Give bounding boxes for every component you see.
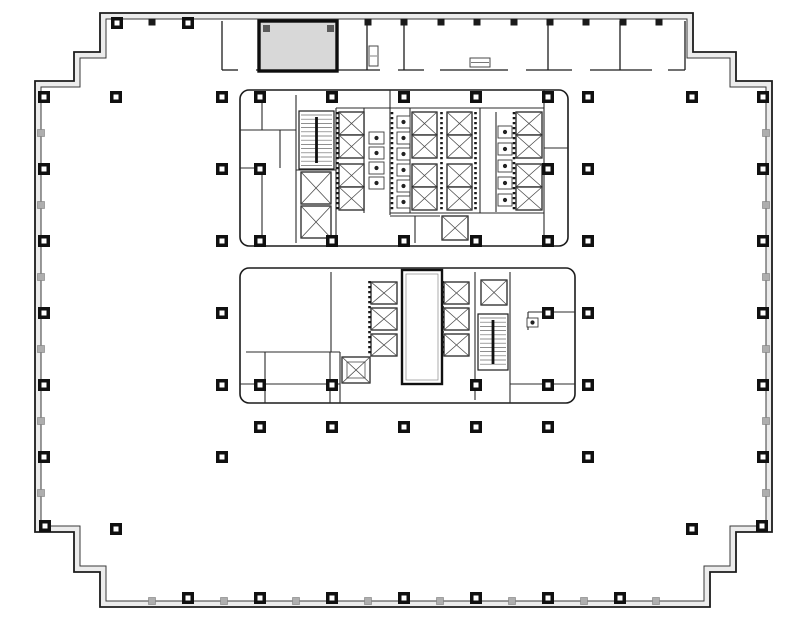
structural-column-core xyxy=(618,596,623,601)
toilet-fixture-bowl xyxy=(401,200,405,204)
structural-column-core xyxy=(186,596,191,601)
structural-column-core xyxy=(42,311,47,316)
mullion-tick xyxy=(38,202,45,209)
shaded-room-outline xyxy=(259,21,337,71)
mullion-tick xyxy=(511,19,518,26)
mullion-tick xyxy=(583,19,590,26)
structural-column-core xyxy=(586,239,591,244)
structural-column-core xyxy=(258,596,263,601)
mullion-tick xyxy=(763,130,770,137)
structural-column-core xyxy=(258,425,263,430)
structural-column-core xyxy=(258,167,263,172)
mullion-tick xyxy=(221,598,228,605)
stair-rail xyxy=(492,320,495,364)
structural-column-core xyxy=(546,95,551,100)
mullion-tick xyxy=(474,19,481,26)
structural-column-core xyxy=(330,596,335,601)
toilet-fixture-bowl xyxy=(401,136,405,140)
mullion-tick xyxy=(149,19,156,26)
mullion-tick xyxy=(437,598,444,605)
toilet-fixture-bowl xyxy=(503,198,507,202)
toilet-fixture-bowl xyxy=(503,164,507,168)
mullion-tick xyxy=(438,19,445,26)
structural-column-core xyxy=(330,95,335,100)
structural-column-core xyxy=(114,527,119,532)
toilet-fixture-bowl xyxy=(401,152,405,156)
structural-column-core xyxy=(586,311,591,316)
mullion-tick xyxy=(149,598,156,605)
structural-column-core xyxy=(546,311,551,316)
floor-plan-drawing xyxy=(0,0,787,627)
structural-column-core xyxy=(42,167,47,172)
mullion-tick xyxy=(763,346,770,353)
toilet-fixture-bowl xyxy=(401,168,405,172)
mullion-tick xyxy=(763,418,770,425)
structural-column-core xyxy=(474,239,479,244)
structural-column-core xyxy=(761,455,766,460)
structural-column-core xyxy=(42,455,47,460)
toilet-fixture-bowl xyxy=(374,136,378,140)
mullion-tick xyxy=(38,418,45,425)
structural-column-core xyxy=(761,383,766,388)
mullion-tick xyxy=(38,346,45,353)
structural-column-core xyxy=(586,95,591,100)
toilet-fixture-bowl xyxy=(503,147,507,151)
structural-column-core xyxy=(402,596,407,601)
toilet-fixture-bowl xyxy=(374,181,378,185)
mullion-tick xyxy=(365,19,372,26)
structural-column-core xyxy=(546,596,551,601)
mullion-tick xyxy=(401,19,408,26)
mullion-tick xyxy=(38,130,45,137)
structural-column-core xyxy=(474,596,479,601)
structural-column-core xyxy=(546,383,551,388)
structural-column-core xyxy=(115,21,120,26)
structural-column-core xyxy=(42,383,47,388)
mullion-tick xyxy=(509,598,516,605)
structural-column-core xyxy=(761,167,766,172)
toilet-fixture-bowl xyxy=(401,184,405,188)
mullion-tick xyxy=(763,202,770,209)
structural-column-core xyxy=(402,425,407,430)
mullion-tick xyxy=(620,19,627,26)
structural-column-core xyxy=(220,311,225,316)
lower-service-core xyxy=(240,268,575,403)
structural-column-core xyxy=(43,524,48,529)
mullion-tick xyxy=(763,490,770,497)
toilet-fixture-bowl xyxy=(530,320,534,324)
structural-column-core xyxy=(42,239,47,244)
structural-column-core xyxy=(220,383,225,388)
mullion-tick xyxy=(547,19,554,26)
mechanical-shaft xyxy=(402,270,442,384)
structural-column-core xyxy=(258,95,263,100)
structural-column-core xyxy=(330,425,335,430)
structural-column-core xyxy=(258,383,263,388)
structural-column-core xyxy=(220,239,225,244)
structural-column-core xyxy=(330,239,335,244)
structural-column-core xyxy=(220,167,225,172)
structural-column-core xyxy=(258,239,263,244)
toilet-fixture-bowl xyxy=(503,181,507,185)
toilet-fixture-bowl xyxy=(401,120,405,124)
corner-mark xyxy=(327,25,334,32)
structural-column-core xyxy=(760,524,765,529)
structural-column-core xyxy=(186,21,191,26)
mullion-tick xyxy=(653,598,660,605)
structural-column-core xyxy=(220,455,225,460)
structural-column-core xyxy=(474,383,479,388)
mullion-tick xyxy=(365,598,372,605)
structural-column-core xyxy=(114,95,119,100)
structural-column-core xyxy=(690,527,695,532)
structural-column-core xyxy=(402,95,407,100)
stair-rail xyxy=(315,117,318,163)
toilet-fixture-bowl xyxy=(374,151,378,155)
structural-column-core xyxy=(586,455,591,460)
structural-column-core xyxy=(474,425,479,430)
structural-column-core xyxy=(546,167,551,172)
structural-column-core xyxy=(474,95,479,100)
structural-column-core xyxy=(690,95,695,100)
mullion-tick xyxy=(656,19,663,26)
structural-column-core xyxy=(586,383,591,388)
structural-column-core xyxy=(761,239,766,244)
mullion-tick xyxy=(763,274,770,281)
mullion-tick xyxy=(38,490,45,497)
corner-mark xyxy=(263,25,270,32)
mullion-tick xyxy=(581,598,588,605)
structural-column-core xyxy=(761,311,766,316)
structural-column-core xyxy=(42,95,47,100)
toilet-fixture-bowl xyxy=(374,166,378,170)
structural-column-core xyxy=(546,239,551,244)
shaded-room xyxy=(259,21,337,71)
floor-plan-sheet xyxy=(0,0,787,627)
toilet-fixture-bowl xyxy=(503,130,507,134)
structural-column-core xyxy=(761,95,766,100)
structural-column-core xyxy=(330,383,335,388)
mullion-tick xyxy=(38,274,45,281)
upper-service-core xyxy=(240,90,568,246)
structural-column-core xyxy=(402,239,407,244)
structural-column-core xyxy=(220,95,225,100)
structural-column-core xyxy=(586,167,591,172)
mullion-tick xyxy=(293,598,300,605)
structural-column-core xyxy=(546,425,551,430)
